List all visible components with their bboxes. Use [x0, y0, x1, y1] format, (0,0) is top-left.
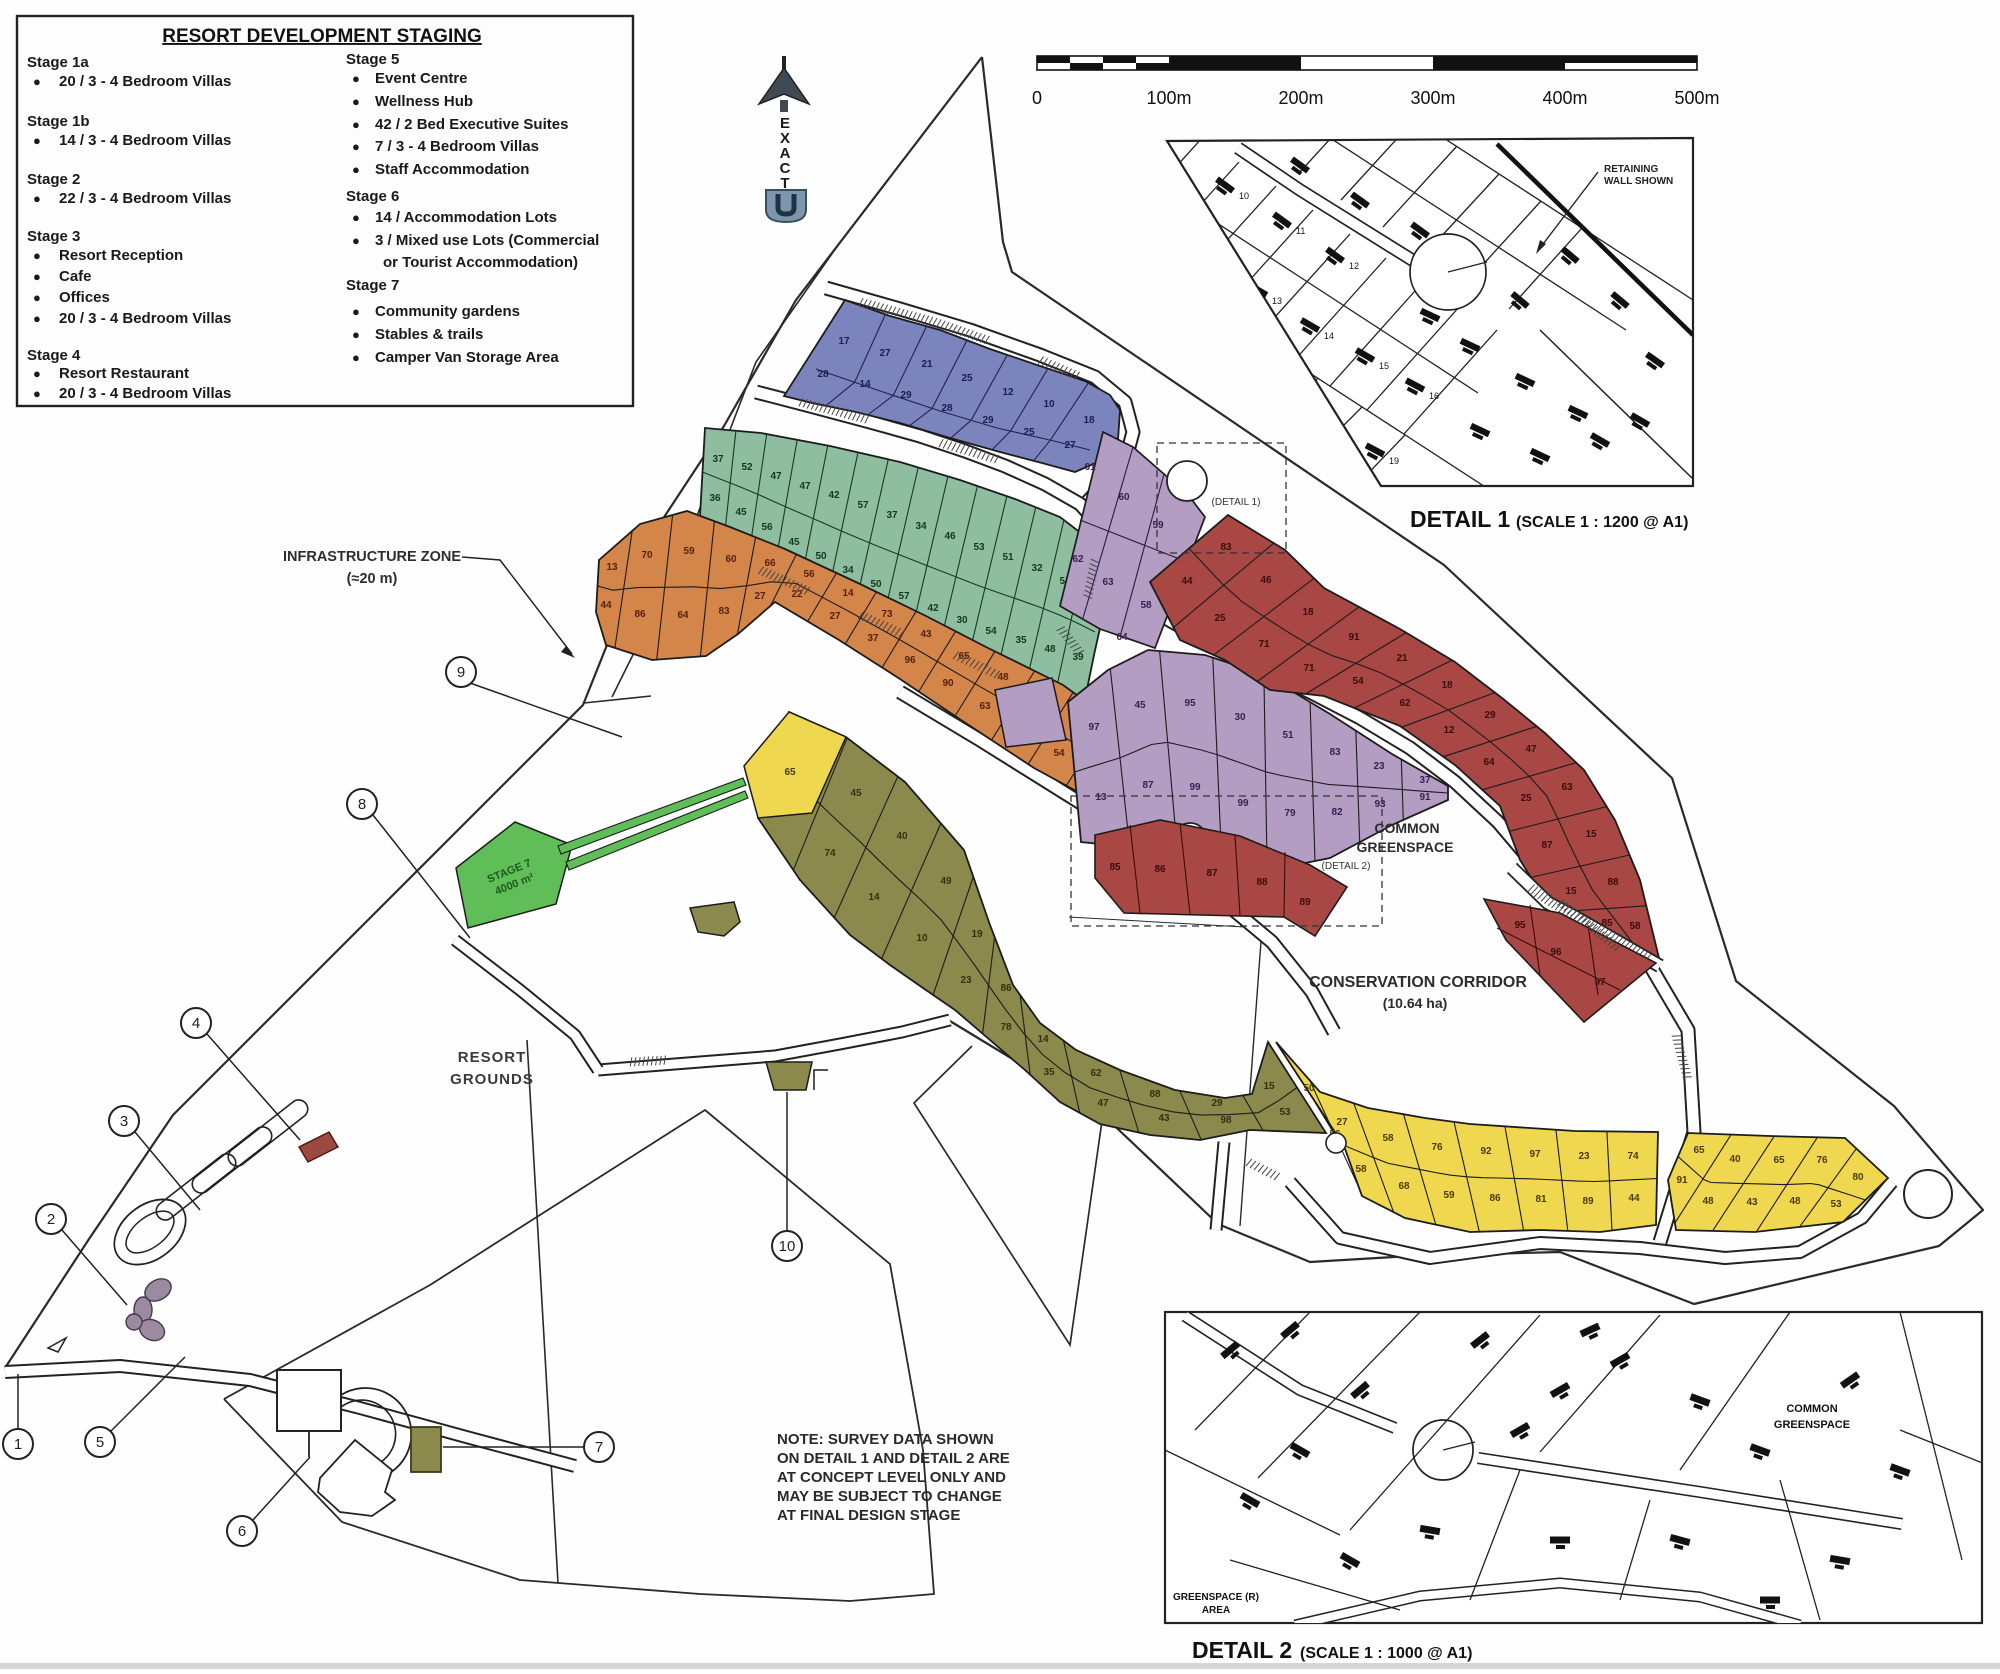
svg-text:45: 45	[735, 507, 747, 518]
svg-text:62: 62	[1072, 554, 1084, 565]
svg-text:44: 44	[1628, 1193, 1640, 1204]
svg-text:30: 30	[1234, 712, 1246, 723]
svg-text:29: 29	[1484, 710, 1496, 721]
svg-text:64: 64	[1483, 757, 1495, 768]
svg-text:12: 12	[1002, 387, 1014, 398]
svg-text:2: 2	[47, 1211, 55, 1228]
svg-text:76: 76	[1816, 1155, 1828, 1166]
svg-text:10: 10	[1043, 399, 1055, 410]
svg-text:28: 28	[941, 403, 953, 414]
svg-text:74: 74	[824, 848, 836, 859]
svg-text:56: 56	[803, 569, 815, 580]
svg-text:97: 97	[1529, 1149, 1541, 1160]
svg-text:6: 6	[238, 1523, 246, 1540]
svg-text:(≈20 m): (≈20 m)	[347, 571, 398, 587]
svg-text:●: ●	[33, 366, 41, 381]
svg-text:14: 14	[1037, 1034, 1049, 1045]
svg-text:Stage 7: Stage 7	[346, 277, 399, 294]
svg-text:28: 28	[817, 369, 829, 380]
svg-text:88: 88	[1256, 877, 1268, 888]
svg-text:58: 58	[1382, 1133, 1394, 1144]
svg-text:23: 23	[1578, 1151, 1590, 1162]
svg-text:37: 37	[886, 510, 898, 521]
svg-text:7: 7	[595, 1439, 603, 1456]
svg-text:Community gardens: Community gardens	[375, 303, 520, 320]
svg-text:32: 32	[1031, 563, 1043, 574]
svg-text:89: 89	[1582, 1196, 1594, 1207]
svg-text:65: 65	[784, 767, 796, 778]
svg-text:71: 71	[1303, 663, 1315, 674]
svg-text:20 / 3 - 4 Bedroom Villas: 20 / 3 - 4 Bedroom Villas	[59, 310, 231, 327]
svg-text:17: 17	[838, 336, 850, 347]
svg-text:27: 27	[1064, 440, 1076, 451]
svg-text:Wellness Hub: Wellness Hub	[375, 93, 473, 110]
svg-text:13: 13	[1272, 296, 1282, 306]
svg-text:64: 64	[1116, 632, 1128, 643]
svg-text:COMMON: COMMON	[1786, 1403, 1837, 1415]
svg-text:●: ●	[33, 311, 41, 326]
svg-text:64: 64	[677, 610, 689, 621]
svg-text:53: 53	[1830, 1199, 1842, 1210]
svg-text:57: 57	[857, 500, 869, 511]
svg-text:(DETAIL 1): (DETAIL 1)	[1212, 497, 1261, 508]
svg-text:●: ●	[352, 71, 360, 86]
svg-text:25: 25	[1214, 613, 1226, 624]
svg-text:53: 53	[1279, 1107, 1291, 1118]
svg-text:58: 58	[1355, 1164, 1367, 1175]
svg-text:400m: 400m	[1542, 88, 1587, 108]
svg-text:Camper Van Storage Area: Camper Van Storage Area	[375, 349, 559, 366]
svg-text:29: 29	[982, 415, 994, 426]
svg-text:71: 71	[1258, 639, 1270, 650]
svg-text:9: 9	[457, 664, 465, 681]
svg-text:GREENSPACE: GREENSPACE	[1357, 839, 1454, 855]
svg-text:50: 50	[870, 579, 882, 590]
svg-text:83: 83	[718, 606, 730, 617]
svg-text:65: 65	[1693, 1145, 1705, 1156]
svg-text:●: ●	[33, 386, 41, 401]
svg-text:●: ●	[352, 162, 360, 177]
svg-text:85: 85	[1109, 862, 1121, 873]
svg-text:15: 15	[1565, 886, 1577, 897]
svg-text:●: ●	[33, 248, 41, 263]
svg-text:AT CONCEPT LEVEL ONLY AND: AT CONCEPT LEVEL ONLY AND	[777, 1469, 1006, 1486]
svg-text:21: 21	[921, 359, 933, 370]
svg-text:300m: 300m	[1410, 88, 1455, 108]
svg-text:46: 46	[1260, 575, 1272, 586]
svg-text:3 / Mixed use Lots (Commercial: 3 / Mixed use Lots (Commercial	[375, 232, 599, 249]
svg-text:●: ●	[352, 117, 360, 132]
svg-text:Event Centre: Event Centre	[375, 70, 468, 87]
svg-text:ON DETAIL 1 AND DETAIL 2 ARE: ON DETAIL 1 AND DETAIL 2 ARE	[777, 1450, 1010, 1467]
svg-text:GROUNDS: GROUNDS	[450, 1071, 534, 1088]
svg-text:63: 63	[1102, 577, 1114, 588]
svg-text:43: 43	[1746, 1197, 1758, 1208]
svg-text:80: 80	[1852, 1172, 1864, 1183]
svg-text:27: 27	[754, 591, 766, 602]
svg-text:79: 79	[1284, 808, 1296, 819]
svg-text:47: 47	[1097, 1098, 1109, 1109]
svg-text:59: 59	[1443, 1190, 1455, 1201]
svg-text:Stage 5: Stage 5	[346, 51, 399, 68]
svg-text:37: 37	[712, 454, 724, 465]
svg-text:52: 52	[741, 462, 753, 473]
svg-text:54: 54	[985, 626, 997, 637]
svg-text:62: 62	[1090, 1068, 1102, 1079]
svg-text:RESORT DEVELOPMENT STAGING: RESORT DEVELOPMENT STAGING	[162, 26, 482, 47]
svg-text:27: 27	[829, 611, 841, 622]
svg-text:65: 65	[1773, 1155, 1785, 1166]
svg-text:81: 81	[1535, 1194, 1547, 1205]
svg-text:1: 1	[14, 1436, 22, 1453]
svg-text:34: 34	[915, 521, 927, 532]
svg-text:COMMON: COMMON	[1374, 820, 1439, 836]
svg-text:(SCALE 1 : 1000 @ A1): (SCALE 1 : 1000 @ A1)	[1300, 1645, 1472, 1662]
svg-text:15: 15	[1263, 1081, 1275, 1092]
svg-text:76: 76	[1431, 1142, 1443, 1153]
svg-text:87: 87	[1142, 780, 1154, 791]
svg-text:●: ●	[33, 191, 41, 206]
svg-text:11: 11	[1296, 226, 1305, 236]
svg-text:97: 97	[1594, 977, 1606, 988]
svg-text:49: 49	[940, 876, 952, 887]
svg-text:37: 37	[867, 633, 879, 644]
svg-text:20 / 3 - 4 Bedroom Villas: 20 / 3 - 4 Bedroom Villas	[59, 73, 231, 90]
svg-text:42 / 2 Bed Executive Suites: 42 / 2 Bed Executive Suites	[375, 116, 568, 133]
svg-text:3: 3	[120, 1113, 128, 1130]
svg-text:10: 10	[916, 933, 928, 944]
svg-text:Staff Accommodation: Staff Accommodation	[375, 161, 529, 178]
svg-text:Offices: Offices	[59, 289, 110, 306]
svg-text:47: 47	[770, 471, 782, 482]
svg-text:200m: 200m	[1278, 88, 1323, 108]
svg-text:AT FINAL DESIGN STAGE: AT FINAL DESIGN STAGE	[777, 1507, 960, 1524]
svg-text:47: 47	[799, 481, 811, 492]
svg-text:Stage 6: Stage 6	[346, 188, 399, 205]
svg-text:48: 48	[1702, 1196, 1714, 1207]
svg-text:48: 48	[1044, 644, 1056, 655]
svg-text:18: 18	[1441, 680, 1453, 691]
svg-text:Cafe: Cafe	[59, 268, 92, 285]
svg-text:73: 73	[881, 609, 893, 620]
svg-text:59: 59	[1152, 520, 1164, 531]
svg-text:18: 18	[1083, 415, 1095, 426]
svg-text:40: 40	[1729, 1154, 1741, 1165]
svg-text:14: 14	[842, 588, 854, 599]
svg-text:86: 86	[1000, 983, 1012, 994]
svg-text:25: 25	[1023, 427, 1035, 438]
svg-text:44: 44	[600, 600, 612, 611]
svg-text:88: 88	[1149, 1089, 1161, 1100]
svg-text:15: 15	[1585, 829, 1597, 840]
svg-text:48: 48	[1789, 1196, 1801, 1207]
svg-text:25: 25	[1520, 793, 1532, 804]
svg-text:10: 10	[1239, 191, 1249, 201]
svg-text:DETAIL 1: DETAIL 1	[1410, 506, 1510, 532]
svg-text:95: 95	[1514, 920, 1526, 931]
svg-text:13: 13	[606, 562, 618, 573]
svg-text:83: 83	[1329, 747, 1341, 758]
svg-text:36: 36	[709, 493, 721, 504]
svg-text:34: 34	[842, 565, 854, 576]
svg-text:●: ●	[33, 269, 41, 284]
svg-text:89: 89	[1299, 897, 1311, 908]
svg-text:500m: 500m	[1674, 88, 1719, 108]
svg-text:●: ●	[352, 94, 360, 109]
svg-text:82: 82	[1331, 807, 1343, 818]
svg-text:12: 12	[1349, 261, 1359, 271]
svg-text:4: 4	[192, 1015, 200, 1032]
svg-text:43: 43	[920, 629, 932, 640]
svg-text:50: 50	[815, 551, 827, 562]
svg-text:40: 40	[896, 831, 908, 842]
svg-text:88: 88	[1607, 877, 1619, 888]
svg-text:83: 83	[1220, 542, 1232, 553]
svg-text:98: 98	[1220, 1115, 1232, 1126]
svg-text:8: 8	[358, 796, 366, 813]
svg-text:46: 46	[944, 531, 956, 542]
svg-text:●: ●	[33, 133, 41, 148]
svg-text:99: 99	[1189, 782, 1201, 793]
svg-text:97: 97	[1088, 722, 1100, 733]
svg-text:61: 61	[1084, 462, 1096, 473]
svg-text:92: 92	[1480, 1146, 1492, 1157]
svg-text:10: 10	[779, 1238, 796, 1255]
svg-text:54: 54	[1053, 748, 1065, 759]
svg-text:91: 91	[1348, 632, 1360, 643]
svg-text:Resort Reception: Resort Reception	[59, 247, 183, 264]
svg-text:21: 21	[1396, 653, 1408, 664]
svg-text:Stage 1a: Stage 1a	[27, 54, 89, 71]
svg-text:50: 50	[1303, 1083, 1315, 1094]
svg-text:RESORT: RESORT	[458, 1049, 527, 1066]
svg-text:96: 96	[1550, 947, 1562, 958]
svg-text:(10.64 ha): (10.64 ha)	[1383, 995, 1448, 1011]
svg-text:78: 78	[1000, 1022, 1012, 1033]
svg-text:42: 42	[828, 490, 840, 501]
svg-text:0: 0	[1032, 88, 1042, 108]
svg-text:91: 91	[1419, 792, 1431, 803]
svg-text:15: 15	[1379, 361, 1389, 371]
svg-text:54: 54	[1352, 676, 1364, 687]
svg-text:12: 12	[1443, 725, 1455, 736]
svg-text:23: 23	[960, 975, 972, 986]
svg-text:CONSERVATION CORRIDOR: CONSERVATION CORRIDOR	[1309, 974, 1527, 991]
svg-text:●: ●	[352, 210, 360, 225]
svg-text:Stables & trails: Stables & trails	[375, 326, 483, 343]
svg-text:47: 47	[1525, 744, 1537, 755]
svg-text:96: 96	[904, 655, 916, 666]
svg-text:or Tourist Accommodation): or Tourist Accommodation)	[383, 254, 578, 271]
svg-text:35: 35	[1015, 635, 1027, 646]
svg-text:5: 5	[96, 1434, 104, 1451]
svg-text:Stage 3: Stage 3	[27, 228, 80, 245]
svg-text:14 / Accommodation Lots: 14 / Accommodation Lots	[375, 209, 557, 226]
svg-text:58: 58	[1140, 600, 1152, 611]
svg-text:45: 45	[850, 788, 862, 799]
svg-text:INFRASTRUCTURE ZONE: INFRASTRUCTURE ZONE	[283, 549, 461, 565]
svg-text:●: ●	[352, 327, 360, 342]
svg-text:53: 53	[973, 542, 985, 553]
svg-text:29: 29	[1211, 1098, 1223, 1109]
svg-text:100m: 100m	[1146, 88, 1191, 108]
svg-text:7 / 3 - 4 Bedroom Villas: 7 / 3 - 4 Bedroom Villas	[375, 138, 539, 155]
svg-text:66: 66	[764, 558, 776, 569]
svg-text:87: 87	[1541, 840, 1553, 851]
svg-text:22 / 3 - 4 Bedroom Villas: 22 / 3 - 4 Bedroom Villas	[59, 190, 231, 207]
svg-text:GREENSPACE (R): GREENSPACE (R)	[1173, 1592, 1259, 1603]
svg-text:14: 14	[1324, 331, 1334, 341]
svg-text:14: 14	[859, 379, 871, 390]
svg-text:●: ●	[352, 350, 360, 365]
svg-text:29: 29	[900, 390, 912, 401]
svg-text:Stage 1b: Stage 1b	[27, 113, 90, 130]
svg-text:60: 60	[725, 554, 737, 565]
svg-text:DETAIL 2: DETAIL 2	[1192, 1637, 1292, 1663]
svg-text:62: 62	[1399, 698, 1411, 709]
svg-text:63: 63	[1561, 782, 1573, 793]
svg-text:16: 16	[1429, 391, 1439, 401]
svg-text:Resort Restaurant: Resort Restaurant	[59, 365, 189, 382]
svg-text:NOTE: SURVEY DATA SHOWN: NOTE: SURVEY DATA SHOWN	[777, 1431, 994, 1448]
svg-text:MAY BE SUBJECT TO CHANGE: MAY BE SUBJECT TO CHANGE	[777, 1488, 1002, 1505]
svg-text:25: 25	[961, 373, 973, 384]
svg-text:18: 18	[1302, 607, 1314, 618]
svg-text:63: 63	[979, 701, 991, 712]
svg-text:●: ●	[33, 290, 41, 305]
svg-text:30: 30	[956, 615, 968, 626]
svg-text:86: 86	[634, 609, 646, 620]
svg-text:58: 58	[1629, 921, 1641, 932]
svg-text:93: 93	[1374, 799, 1386, 810]
svg-text:86: 86	[1489, 1193, 1501, 1204]
svg-text:●: ●	[352, 139, 360, 154]
svg-text:99: 99	[1237, 798, 1249, 809]
svg-text:35: 35	[1043, 1067, 1055, 1078]
svg-text:Stage 4: Stage 4	[27, 347, 81, 364]
svg-text:Stage 2: Stage 2	[27, 171, 80, 188]
svg-text:51: 51	[1282, 730, 1294, 741]
svg-text:87: 87	[1206, 868, 1218, 879]
svg-text:27: 27	[1336, 1117, 1348, 1128]
svg-text:13: 13	[1095, 792, 1107, 803]
svg-text:AREA: AREA	[1202, 1605, 1230, 1616]
svg-text:(SCALE 1 : 1200 @ A1): (SCALE 1 : 1200 @ A1)	[1516, 514, 1688, 531]
svg-text:19: 19	[971, 929, 983, 940]
svg-text:●: ●	[352, 304, 360, 319]
svg-text:43: 43	[1158, 1113, 1170, 1124]
svg-text:GREENSPACE: GREENSPACE	[1774, 1419, 1850, 1431]
svg-text:59: 59	[683, 546, 695, 557]
svg-text:91: 91	[1676, 1175, 1688, 1186]
svg-text:86: 86	[1154, 864, 1166, 875]
svg-text:74: 74	[1627, 1151, 1639, 1162]
svg-text:90: 90	[942, 678, 954, 689]
svg-text:56: 56	[761, 522, 773, 533]
svg-text:19: 19	[1389, 456, 1399, 466]
svg-text:RETAINING: RETAINING	[1604, 164, 1658, 175]
svg-text:48: 48	[997, 672, 1009, 683]
svg-text:●: ●	[352, 233, 360, 248]
svg-text:27: 27	[879, 348, 891, 359]
svg-text:(DETAIL 2): (DETAIL 2)	[1322, 861, 1371, 872]
svg-text:51: 51	[1002, 552, 1014, 563]
svg-text:60: 60	[1118, 492, 1130, 503]
svg-text:20 / 3 - 4 Bedroom Villas: 20 / 3 - 4 Bedroom Villas	[59, 385, 231, 402]
svg-text:23: 23	[1373, 761, 1385, 772]
svg-text:14: 14	[868, 892, 880, 903]
svg-text:WALL SHOWN: WALL SHOWN	[1604, 176, 1673, 187]
svg-text:14 / 3 - 4 Bedroom Villas: 14 / 3 - 4 Bedroom Villas	[59, 132, 231, 149]
svg-text:45: 45	[788, 537, 800, 548]
svg-text:68: 68	[1398, 1181, 1410, 1192]
svg-text:95: 95	[1184, 698, 1196, 709]
svg-text:37: 37	[1419, 775, 1431, 786]
svg-text:44: 44	[1181, 576, 1193, 587]
svg-text:57: 57	[898, 591, 910, 602]
svg-text:●: ●	[33, 74, 41, 89]
svg-text:42: 42	[927, 603, 939, 614]
svg-text:45: 45	[1134, 700, 1146, 711]
svg-text:70: 70	[641, 550, 653, 561]
